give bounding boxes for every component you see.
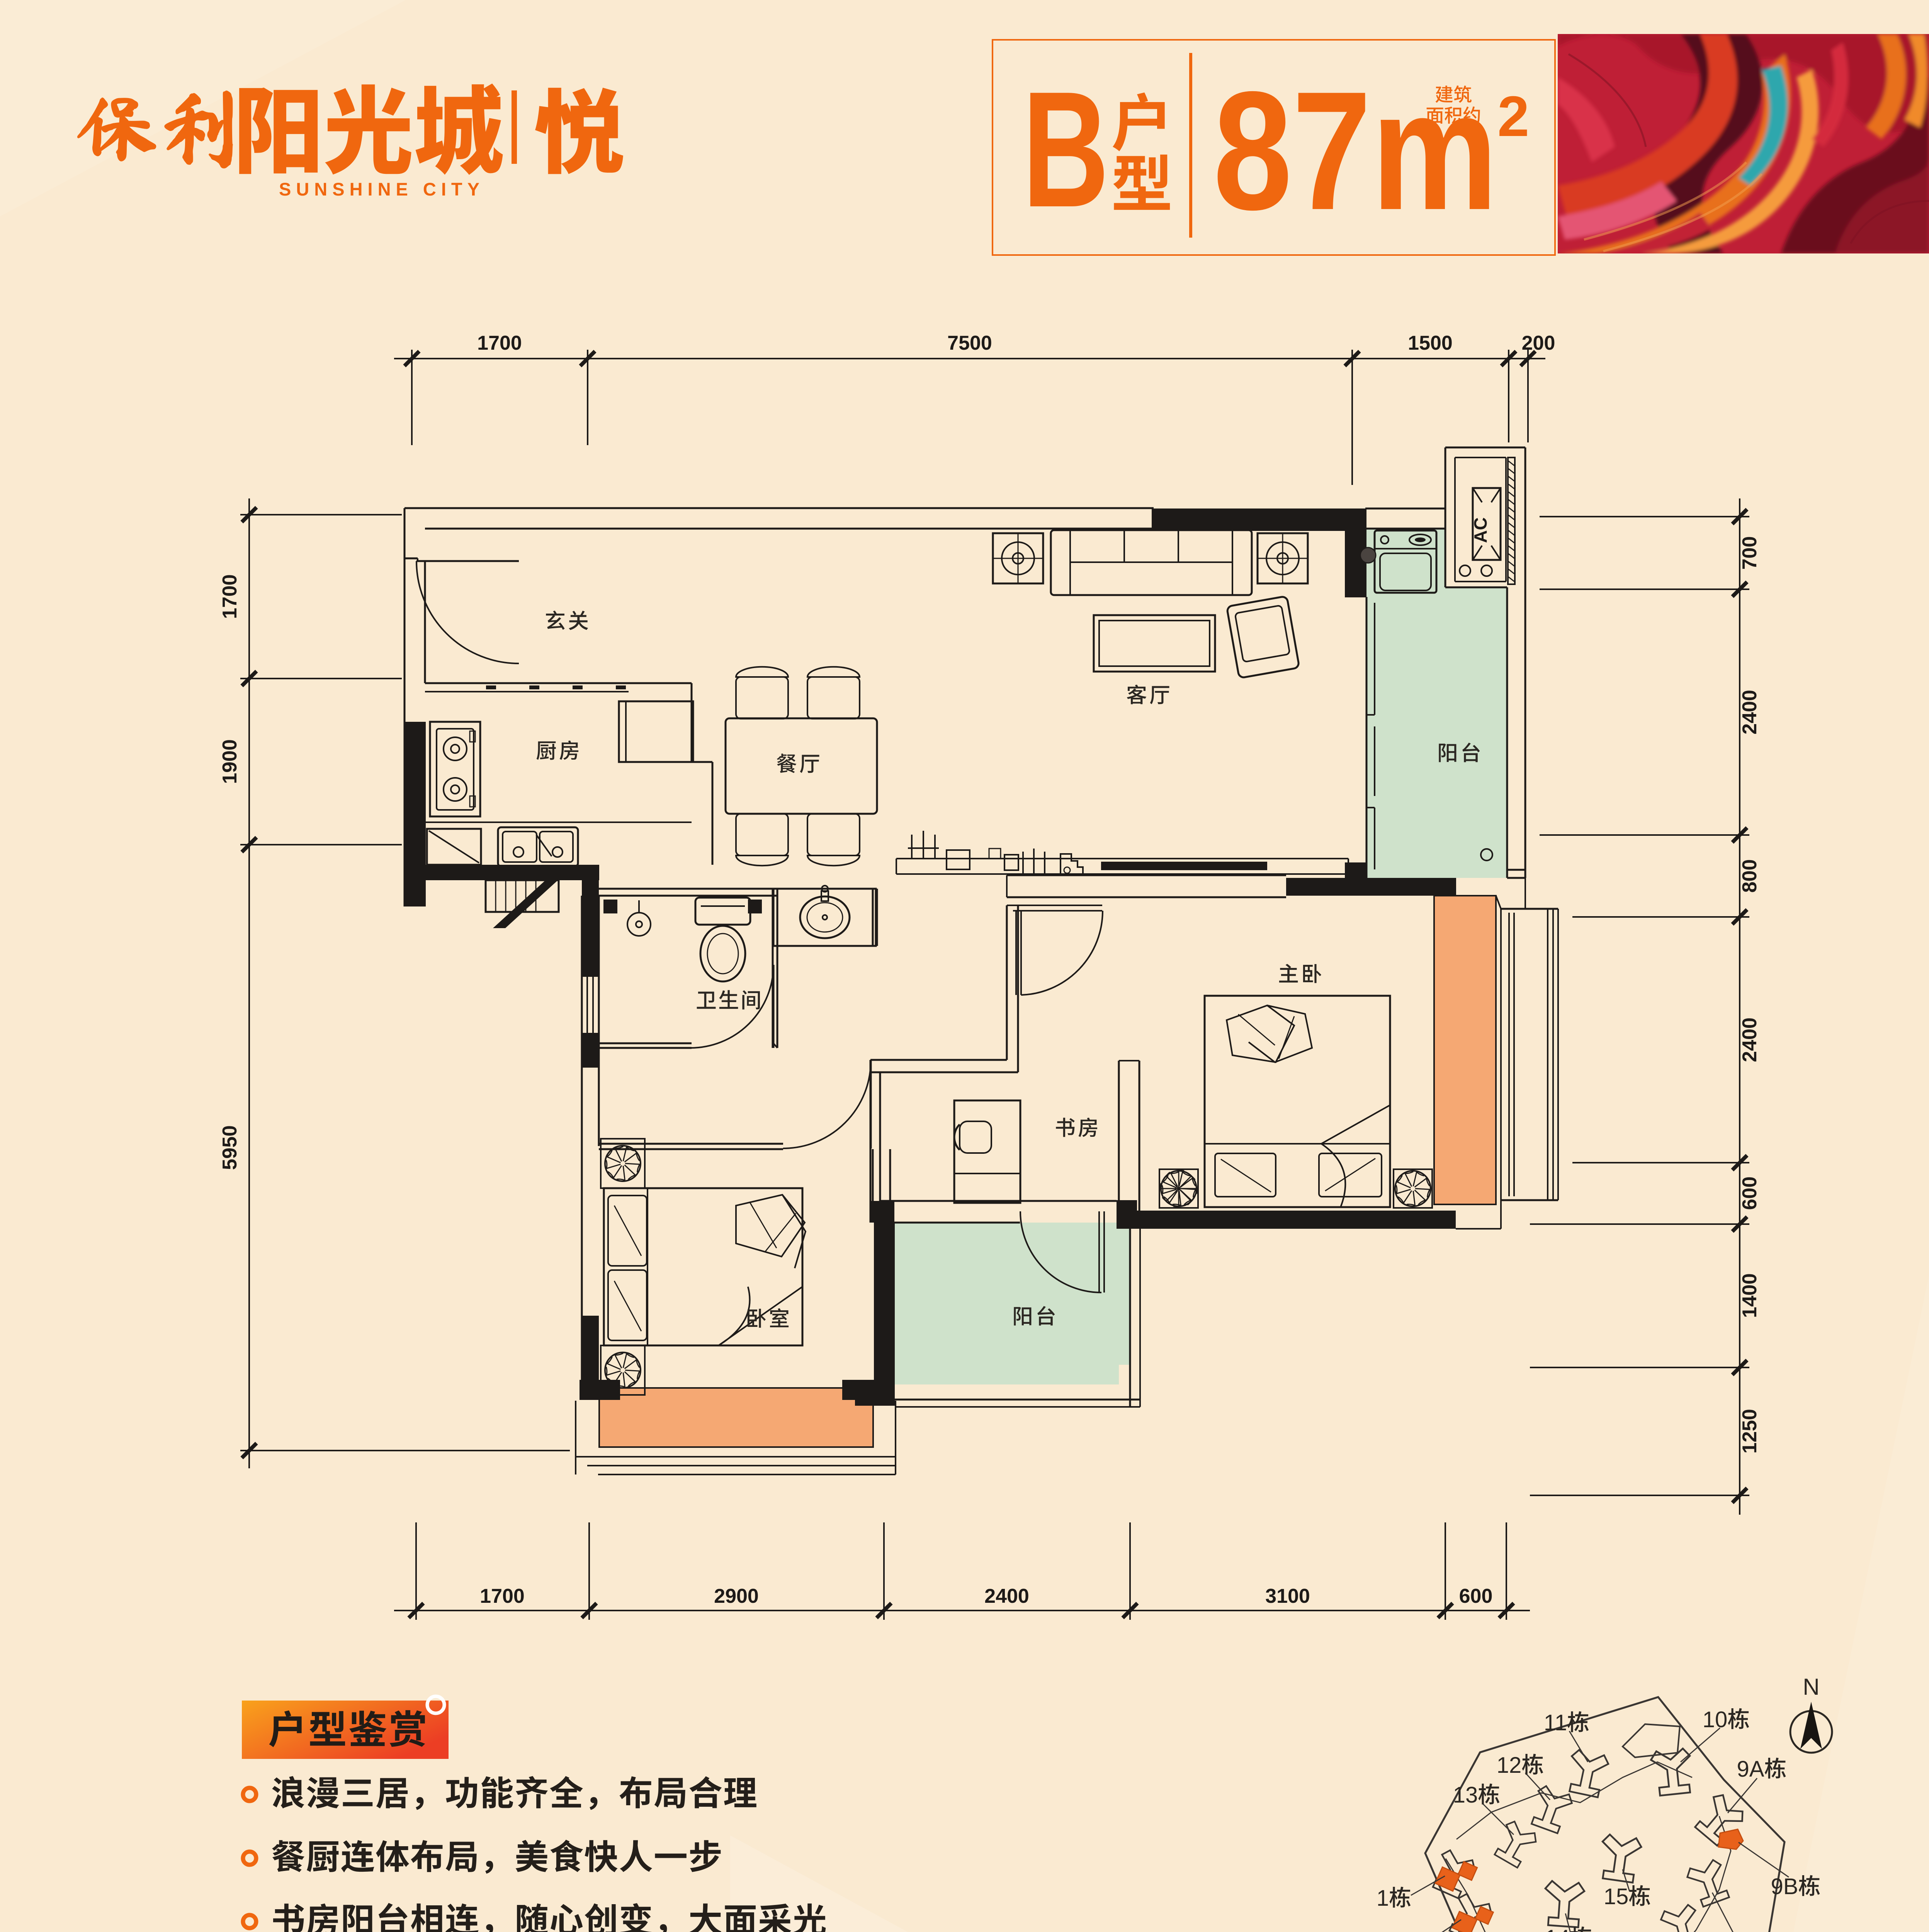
svg-text:B: B — [1022, 57, 1109, 241]
svg-text:5950: 5950 — [219, 1125, 241, 1170]
svg-text:SUNSHINE CITY: SUNSHINE CITY — [279, 179, 484, 199]
svg-text:9A栋: 9A栋 — [1737, 1751, 1787, 1783]
svg-text:主卧: 主卧 — [1278, 957, 1324, 988]
svg-text:2900: 2900 — [714, 1585, 759, 1607]
svg-text:2: 2 — [1497, 85, 1529, 148]
svg-text:1500: 1500 — [1408, 332, 1453, 354]
svg-text:700: 700 — [1739, 536, 1761, 570]
svg-text:1栋: 1栋 — [1377, 1880, 1411, 1912]
svg-text:户型鉴赏: 户型鉴赏 — [268, 1699, 429, 1755]
svg-text:阳台: 阳台 — [1012, 1299, 1059, 1330]
svg-text:1400: 1400 — [1739, 1273, 1761, 1318]
svg-text:1700: 1700 — [219, 574, 241, 619]
svg-text:13栋: 13栋 — [1453, 1777, 1501, 1809]
svg-text:书房: 书房 — [1055, 1111, 1101, 1141]
svg-text:厨房: 厨房 — [536, 734, 582, 764]
svg-text:2400: 2400 — [1739, 1017, 1761, 1062]
svg-text:N: N — [1803, 1674, 1819, 1700]
svg-text:9B栋: 9B栋 — [1771, 1868, 1821, 1901]
svg-text:书房阳台相连，随心创变，大面采光: 书房阳台相连，随心创变，大面采光 — [271, 1893, 828, 1932]
svg-text:餐厅: 餐厅 — [776, 747, 823, 777]
svg-text:浪漫三居，功能齐全，布局合理: 浪漫三居，功能齐全，布局合理 — [271, 1766, 758, 1815]
svg-text:14栋: 14栋 — [1545, 1920, 1592, 1932]
svg-text:600: 600 — [1739, 1177, 1761, 1210]
svg-text:阳台: 阳台 — [1437, 736, 1484, 767]
svg-text:卫生间: 卫生间 — [696, 983, 763, 1014]
svg-text:12栋: 12栋 — [1497, 1747, 1544, 1779]
svg-text:800: 800 — [1739, 859, 1761, 893]
svg-text:1900: 1900 — [219, 739, 241, 784]
svg-text:2400: 2400 — [984, 1585, 1029, 1607]
svg-text:玄关: 玄关 — [545, 604, 591, 634]
svg-text:3100: 3100 — [1265, 1585, 1310, 1607]
svg-text:600: 600 — [1459, 1585, 1493, 1607]
svg-text:型: 型 — [1111, 135, 1173, 224]
svg-text:阳光城: 阳光城 — [233, 56, 504, 193]
svg-text:7500: 7500 — [947, 332, 992, 354]
svg-text:1250: 1250 — [1739, 1409, 1761, 1454]
svg-text:卧室: 卧室 — [746, 1302, 792, 1332]
svg-text:15栋: 15栋 — [1604, 1878, 1651, 1911]
svg-text:200: 200 — [1522, 332, 1555, 354]
svg-text:餐厨连体布局，美食快人一步: 餐厨连体布局，美食快人一步 — [271, 1830, 723, 1879]
svg-text:1700: 1700 — [477, 332, 522, 354]
svg-text:客厅: 客厅 — [1126, 678, 1173, 709]
svg-text:2400: 2400 — [1739, 690, 1761, 735]
svg-text:1700: 1700 — [480, 1585, 525, 1607]
svg-text:10栋: 10栋 — [1703, 1701, 1750, 1734]
svg-text:保利: 保利 — [76, 87, 240, 168]
svg-text:11栋: 11栋 — [1544, 1704, 1589, 1737]
svg-text:AC: AC — [1470, 517, 1491, 543]
svg-text:悦: 悦 — [534, 60, 625, 192]
svg-text:面积约: 面积约 — [1426, 100, 1481, 128]
svg-text:2栋: 2栋 — [1393, 1927, 1428, 1932]
